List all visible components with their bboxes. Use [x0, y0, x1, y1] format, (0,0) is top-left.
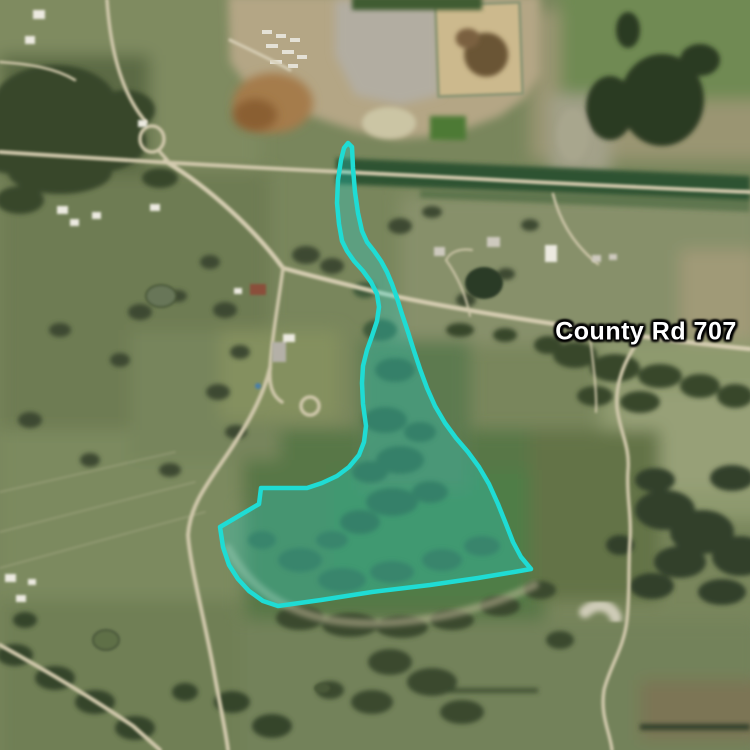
parcel-overlay-layer: [0, 0, 750, 750]
map-canvas[interactable]: County Rd 707: [0, 0, 750, 750]
parcel-boundary-polygon[interactable]: [220, 143, 531, 606]
